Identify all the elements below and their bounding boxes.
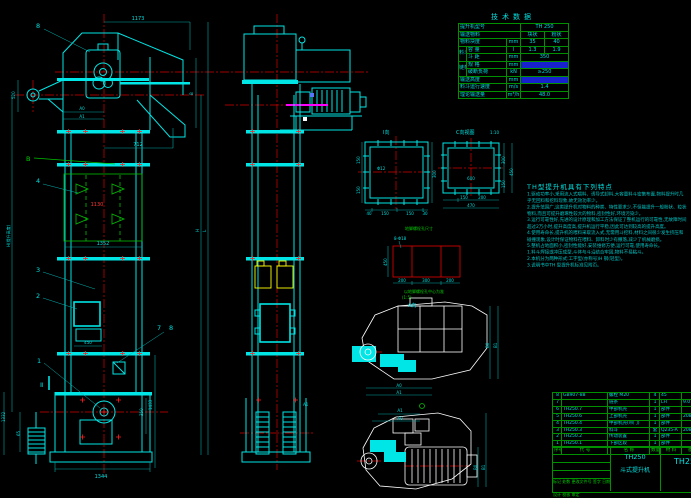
tech-lump-unit: mm xyxy=(507,39,521,47)
view1-caption: Ⅰ向 xyxy=(383,129,389,136)
tech-lump-label: 物料块度 xyxy=(459,39,507,47)
bom-row: 4TH250.4 中部机壳(带门)1 部件 xyxy=(553,420,691,427)
side-dim-a1: A1 xyxy=(303,402,309,407)
signature-row2: 设计 校核 审定 xyxy=(553,492,582,498)
flange2-r3: 450 xyxy=(509,168,514,176)
lift-height-note: H(提升高度) xyxy=(5,224,11,247)
note-line: 3.说明书中TH 型提升机标准见附页。 xyxy=(527,262,691,268)
tech-speed-unit: m/s xyxy=(507,84,521,92)
drive-detail-view xyxy=(361,413,477,489)
tech-cap-unit: l xyxy=(507,46,521,54)
tech-material-v2: 粉状 xyxy=(545,31,569,39)
feature-notes: TH型提升机具有下列特点 1.驱动功率小,采用流入式喂料、诱导式卸料,大容量料斗… xyxy=(527,181,691,329)
bom-row: 8GB907-88 螺栓 M204 45 xyxy=(553,393,691,400)
tech-height-value xyxy=(521,76,569,84)
signature-row1: 标记 处数 更改文件号 签字 日期 xyxy=(553,479,582,485)
tech-pitch-label: 斗 距 xyxy=(467,54,507,62)
anchor-note2: (1:5) xyxy=(402,295,412,300)
product-cell: TH250 斗式提升机 xyxy=(610,447,661,491)
tech-data-table: 提升机型号 TH 250 输送物料 块状 粉状 物料块度 mm 35 40 料斗… xyxy=(458,23,569,99)
flange2-b3: 470 xyxy=(467,203,475,208)
balloon-4: 4 xyxy=(36,177,40,185)
flange2-center: 600 xyxy=(467,176,475,181)
bom-row: 2TH250.2 传动装置1 部件 xyxy=(553,434,691,441)
tech-spec-value xyxy=(521,61,569,69)
tech-speed-value: 1.4 xyxy=(521,84,569,92)
flange-detail-1 xyxy=(363,140,430,205)
tech-material-v1: 块状 xyxy=(521,31,545,39)
section-mark-2: Ⅱ xyxy=(40,381,43,389)
bom-row: 6TH250.7 中部机壳1 部件 xyxy=(553,406,691,413)
balloon-1: 1 xyxy=(37,357,41,365)
tech-capacity-value: 48.0 xyxy=(521,91,569,99)
tech-bucket-group: 料斗 xyxy=(459,46,467,61)
upper-a1: A1 xyxy=(396,390,402,395)
flange1-b2: 150 xyxy=(381,211,389,216)
head-detail-view xyxy=(352,298,487,409)
tech-speed-label: 料斗运行速度 xyxy=(459,84,507,92)
dim-1130: 1130 xyxy=(91,202,104,208)
model-number: TH250 xyxy=(610,453,660,461)
anchor-caption: 地脚螺栓孔尺寸 xyxy=(405,225,433,231)
drawing-code: TH250 xyxy=(660,457,691,466)
note-line: 4.使用寿命长,提升机的喂料采取流入式,无需用斗挖料,材料之间很少发生挤压和 xyxy=(527,230,691,236)
anchor-note1: 以地脚螺栓孔中心为准 xyxy=(404,288,444,294)
dim-a0: A0 xyxy=(79,106,85,111)
flange1-right: 300 xyxy=(432,170,437,178)
flange1-left1: 150 xyxy=(356,156,361,164)
anchor-left-dim: 450 xyxy=(383,258,388,266)
bom-row: 3TH250.3 料斗套 Q235-A208 xyxy=(553,427,691,434)
flange2-r2: 150 xyxy=(501,180,506,188)
upper-a0: A0 xyxy=(396,383,402,388)
tech-spec-unit: mm xyxy=(507,61,521,69)
lower-b1: B1 xyxy=(481,464,486,470)
tech-spec-label: 规 格 xyxy=(467,61,507,69)
anchor-b3: 200 xyxy=(446,278,454,283)
tech-height-label: 输送高度 xyxy=(459,76,507,84)
flange2-b2: 200 xyxy=(478,195,486,200)
upper-b0: B0 xyxy=(485,342,490,348)
side-elevation-view xyxy=(242,26,366,462)
cad-drawing-sheet: { "tech_table": { "title": "技术数据", "mode… xyxy=(0,0,691,491)
note-line: 3.运行可靠性好,先进的设计原理和加工方法保证了整机运行的可靠性,无故障时间 xyxy=(527,217,691,223)
dim-1173: 1173 xyxy=(132,16,145,22)
lower-b0: B0 xyxy=(473,464,478,470)
balloon-8: 8 xyxy=(36,22,40,30)
note-line: 1.驱动功率小,采用流入式喂料、诱导式卸料,大容量料斗密集布置,物料提升时几 xyxy=(527,191,691,197)
upper-b1: B1 xyxy=(493,342,498,348)
tech-model-label: 提升机型号 xyxy=(459,24,521,32)
anchor-b2: 300 xyxy=(422,278,430,283)
drawing-code-cell: TH250 xyxy=(660,447,691,491)
front-elevation-view xyxy=(27,33,190,464)
tech-cap-label: 容 量 xyxy=(467,46,507,54)
lower-a1: A1 xyxy=(397,408,403,413)
section-mark-b: B xyxy=(26,155,30,163)
flange1-b4: 30 xyxy=(422,211,428,216)
notes-body: 1.驱动功率小,采用流入式喂料、诱导式卸料,大容量料斗密集布置,物料提升时几 乎… xyxy=(527,191,691,268)
lower-a0: A0 xyxy=(397,416,403,421)
dim-h: H xyxy=(195,229,200,232)
tech-chain-group: 链条 xyxy=(459,61,467,76)
dim-350: 350 xyxy=(139,408,144,416)
tech-table-title: 技术数据 xyxy=(458,12,568,22)
dim-1433: 1433 xyxy=(148,399,153,410)
tech-capacity-label: 理论输送量 xyxy=(459,91,507,99)
balloon-2: 2 xyxy=(36,292,40,300)
flange1-left2: 150 xyxy=(356,186,361,194)
dim-a1: A1 xyxy=(79,114,85,119)
flange1-hole: Φ12 xyxy=(377,166,386,171)
dim-1352: 1352 xyxy=(97,241,110,247)
notes-title: TH型提升机具有下列特点 xyxy=(527,181,691,191)
view2-scale: 1:10 xyxy=(490,130,499,135)
note-line: 2.提升范围广,这类提升机对物料的种类、特性要求少,不但能提升一般粉状、粒状 xyxy=(527,204,691,210)
dim-450: 450 xyxy=(84,340,92,345)
dim-b: B xyxy=(189,92,194,95)
bom-row: 5TH250.6 上部机壳1 部件208 xyxy=(553,413,691,420)
dim-65: 65 xyxy=(16,430,21,436)
flange2-r1: 300 xyxy=(501,156,506,164)
tech-pitch-unit: mm xyxy=(507,54,521,62)
product-name: 斗式提升机 xyxy=(610,465,660,474)
signature-grid: 标记 处数 更改文件号 签字 日期 设计 校核 审定 xyxy=(553,447,611,491)
tech-cap-v1: 1.3 xyxy=(521,46,545,54)
flange2-b1: 150 xyxy=(460,195,468,200)
anchor-bolt-detail xyxy=(393,246,460,277)
dim-1332: 1332 xyxy=(1,411,6,422)
tech-break-label: 破断负荷 xyxy=(467,69,507,77)
balloon-3: 3 xyxy=(36,266,40,274)
balloon-8b: 8 xyxy=(169,324,173,332)
dim-520: 520 xyxy=(11,91,16,99)
anchor-b1: 200 xyxy=(398,278,406,283)
dim-1344: 1344 xyxy=(95,474,108,480)
tech-break-value: ≥250 xyxy=(521,69,569,77)
tech-pitch-value: 350 xyxy=(521,54,569,62)
tech-break-unit: kN xyxy=(507,69,521,77)
dim-l: L xyxy=(202,229,207,232)
dim-712: 712 xyxy=(133,142,143,148)
flange1-b1: 40 xyxy=(366,211,372,216)
view2-caption: C向视图 xyxy=(456,129,475,136)
viewA-caption: A向 xyxy=(408,302,416,309)
anchor-hole-label: 8-Φ18 xyxy=(394,236,407,241)
tech-lump-v2: 40 xyxy=(545,39,569,47)
tech-cap-v2: 1.9 xyxy=(545,46,569,54)
tech-model-value: TH 250 xyxy=(521,24,569,32)
tech-height-unit: mm xyxy=(507,76,521,84)
flange1-b3: 150 xyxy=(406,211,414,216)
tech-lump-v1: 35 xyxy=(521,39,545,47)
title-block: 标记 处数 更改文件号 签字 日期 设计 校核 审定 TH250 斗式提升机 T… xyxy=(552,446,691,493)
tech-material-label: 输送物料 xyxy=(459,31,521,39)
balloon-7: 7 xyxy=(157,324,161,332)
bom-row: 7 链条1 LH9.0 xyxy=(553,399,691,406)
tech-capacity-unit: m³/h xyxy=(507,91,521,99)
